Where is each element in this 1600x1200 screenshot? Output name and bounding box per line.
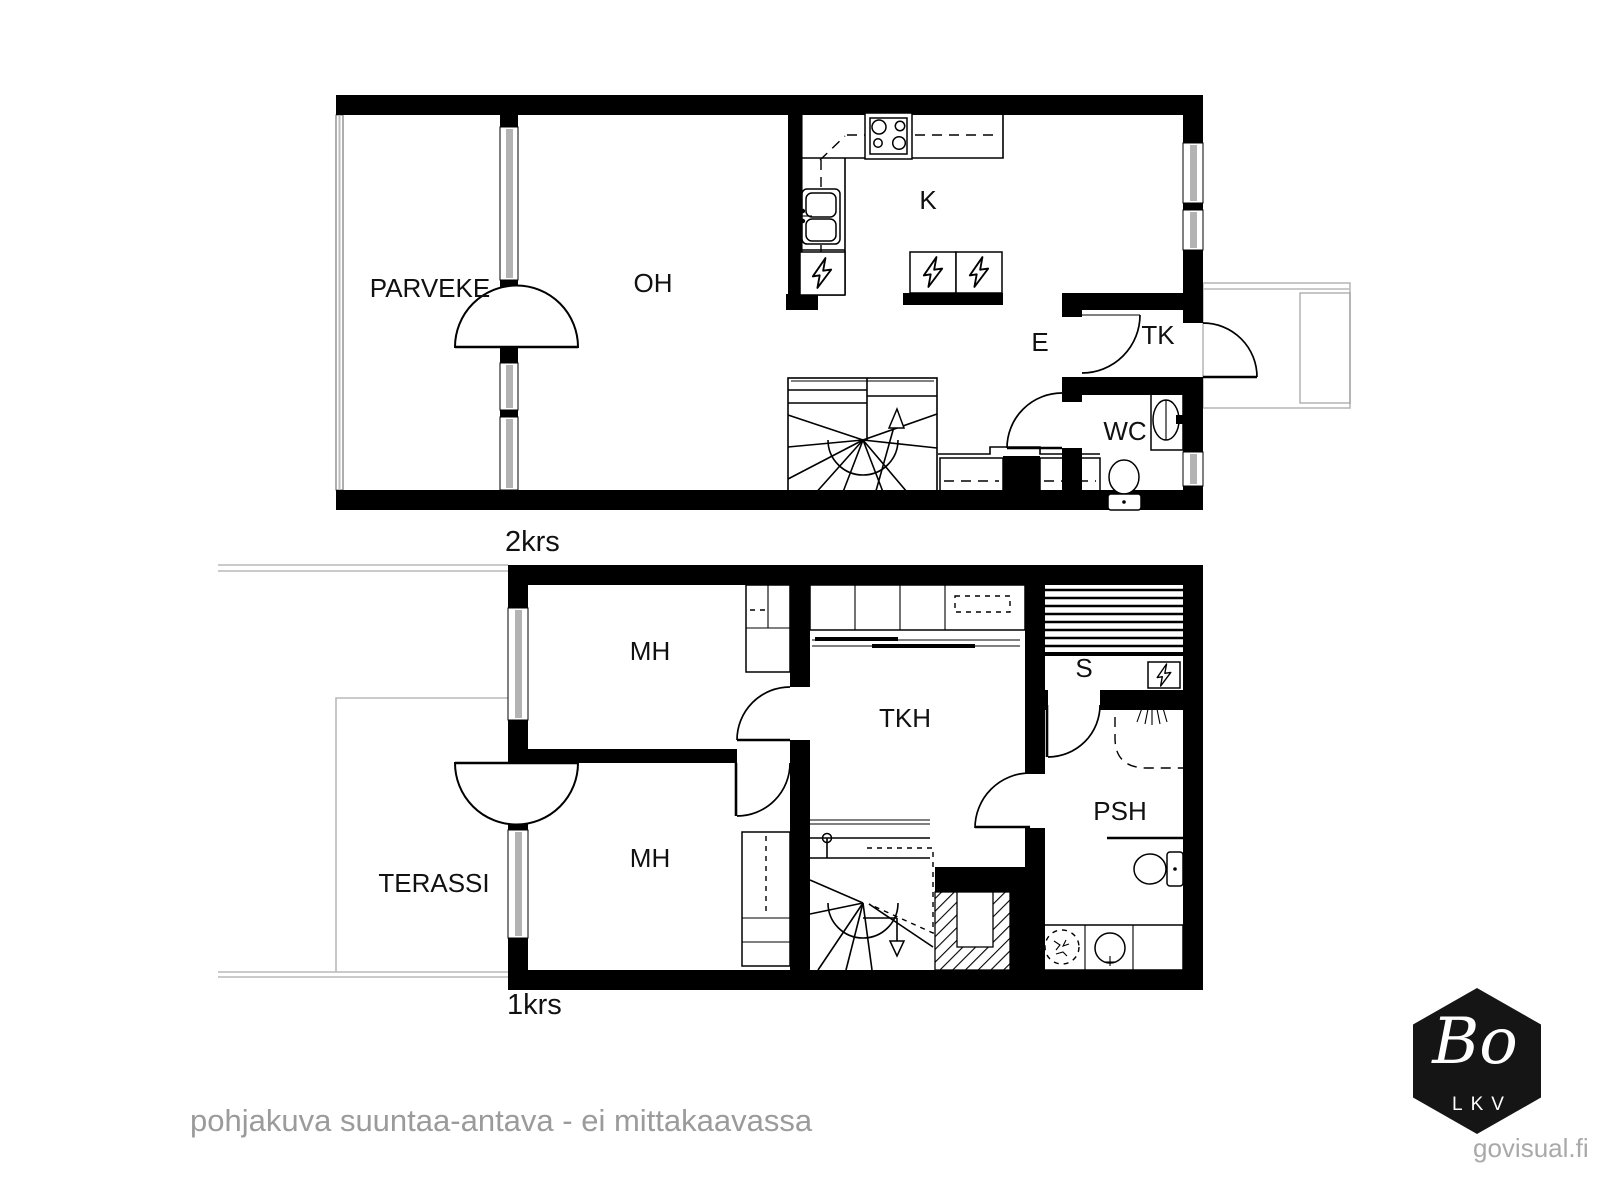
laundry-counter bbox=[1040, 925, 1183, 970]
front-door bbox=[1203, 323, 1257, 377]
mh-upper-closet bbox=[746, 585, 790, 672]
psh-door bbox=[975, 773, 1030, 828]
disclaimer-text: pohjakuva suuntaa-antava - ei mittakaava… bbox=[190, 1103, 813, 1138]
appliance-icon bbox=[800, 252, 845, 295]
room-label-terassi: TERASSI bbox=[378, 868, 489, 898]
stove-icon bbox=[865, 113, 912, 159]
room-label-e: E bbox=[1031, 327, 1048, 357]
psh-fixtures bbox=[1040, 692, 1183, 970]
room-label-tk: TK bbox=[1141, 320, 1175, 350]
appliance-icon bbox=[910, 252, 956, 293]
room-label-mh-lower: MH bbox=[630, 843, 670, 873]
washing-machine-icon bbox=[1045, 930, 1079, 964]
logo-subtext: LKV bbox=[1452, 1094, 1512, 1115]
room-label-k: K bbox=[919, 185, 937, 215]
mh-lower-closet bbox=[742, 832, 790, 966]
floor-label-2krs: 2krs bbox=[505, 526, 560, 558]
website-text: govisual.fi bbox=[1473, 1133, 1589, 1163]
room-label-s: S bbox=[1075, 653, 1092, 683]
room-label-tkh: TKH bbox=[879, 703, 931, 733]
toilet-icon bbox=[1134, 852, 1183, 886]
window bbox=[500, 363, 518, 410]
tk-door bbox=[1082, 315, 1140, 373]
balcony-railing bbox=[336, 115, 343, 490]
mh-lower-door bbox=[736, 763, 790, 816]
room-label-oh: OH bbox=[634, 268, 673, 298]
appliance-icon bbox=[956, 252, 1002, 293]
window bbox=[500, 417, 518, 490]
wc-door bbox=[1007, 393, 1062, 448]
sink-icon bbox=[797, 189, 840, 244]
window bbox=[1183, 210, 1203, 250]
floor2-plan: PARVEKE OH K E TK WC 2krs bbox=[336, 95, 1350, 558]
room-label-psh: PSH bbox=[1093, 796, 1146, 826]
window bbox=[508, 608, 528, 720]
room-label-wc: WC bbox=[1103, 416, 1146, 446]
bo-lkv-logo: Bo LKV bbox=[1413, 988, 1541, 1134]
washbasin-icon bbox=[1095, 933, 1125, 966]
room-label-mh-upper: MH bbox=[630, 636, 670, 666]
stairs-direction-arrow bbox=[874, 409, 904, 498]
terrace-door bbox=[455, 763, 578, 825]
stairs-upper bbox=[788, 378, 937, 505]
window bbox=[1183, 143, 1203, 203]
stairs-lower bbox=[797, 820, 933, 970]
sauna-benches bbox=[1045, 590, 1183, 688]
toilet-icon bbox=[1108, 460, 1141, 510]
room-label-parveke: PARVEKE bbox=[370, 273, 490, 303]
floor-label-1krs: 1krs bbox=[507, 989, 562, 1021]
sauna-stove-icon bbox=[1148, 662, 1180, 688]
kitchen-fixtures bbox=[788, 113, 1003, 295]
washbasin-icon bbox=[1151, 394, 1183, 450]
floorplan-page: PARVEKE OH K E TK WC 2krs bbox=[0, 0, 1600, 1200]
window bbox=[500, 127, 518, 280]
tkh-wardrobes bbox=[810, 585, 1025, 648]
window bbox=[508, 830, 528, 938]
logo-text: Bo bbox=[1431, 1005, 1518, 1079]
mh-upper-door bbox=[737, 687, 790, 740]
floor1-plan: MH TKH S PSH MH TERASSI 1krs bbox=[218, 565, 1203, 1021]
sauna-door bbox=[1047, 705, 1100, 757]
entrance-porch-outline bbox=[1203, 283, 1350, 408]
floorplan-drawing: PARVEKE OH K E TK WC 2krs bbox=[0, 0, 1600, 1200]
window bbox=[1183, 452, 1203, 486]
